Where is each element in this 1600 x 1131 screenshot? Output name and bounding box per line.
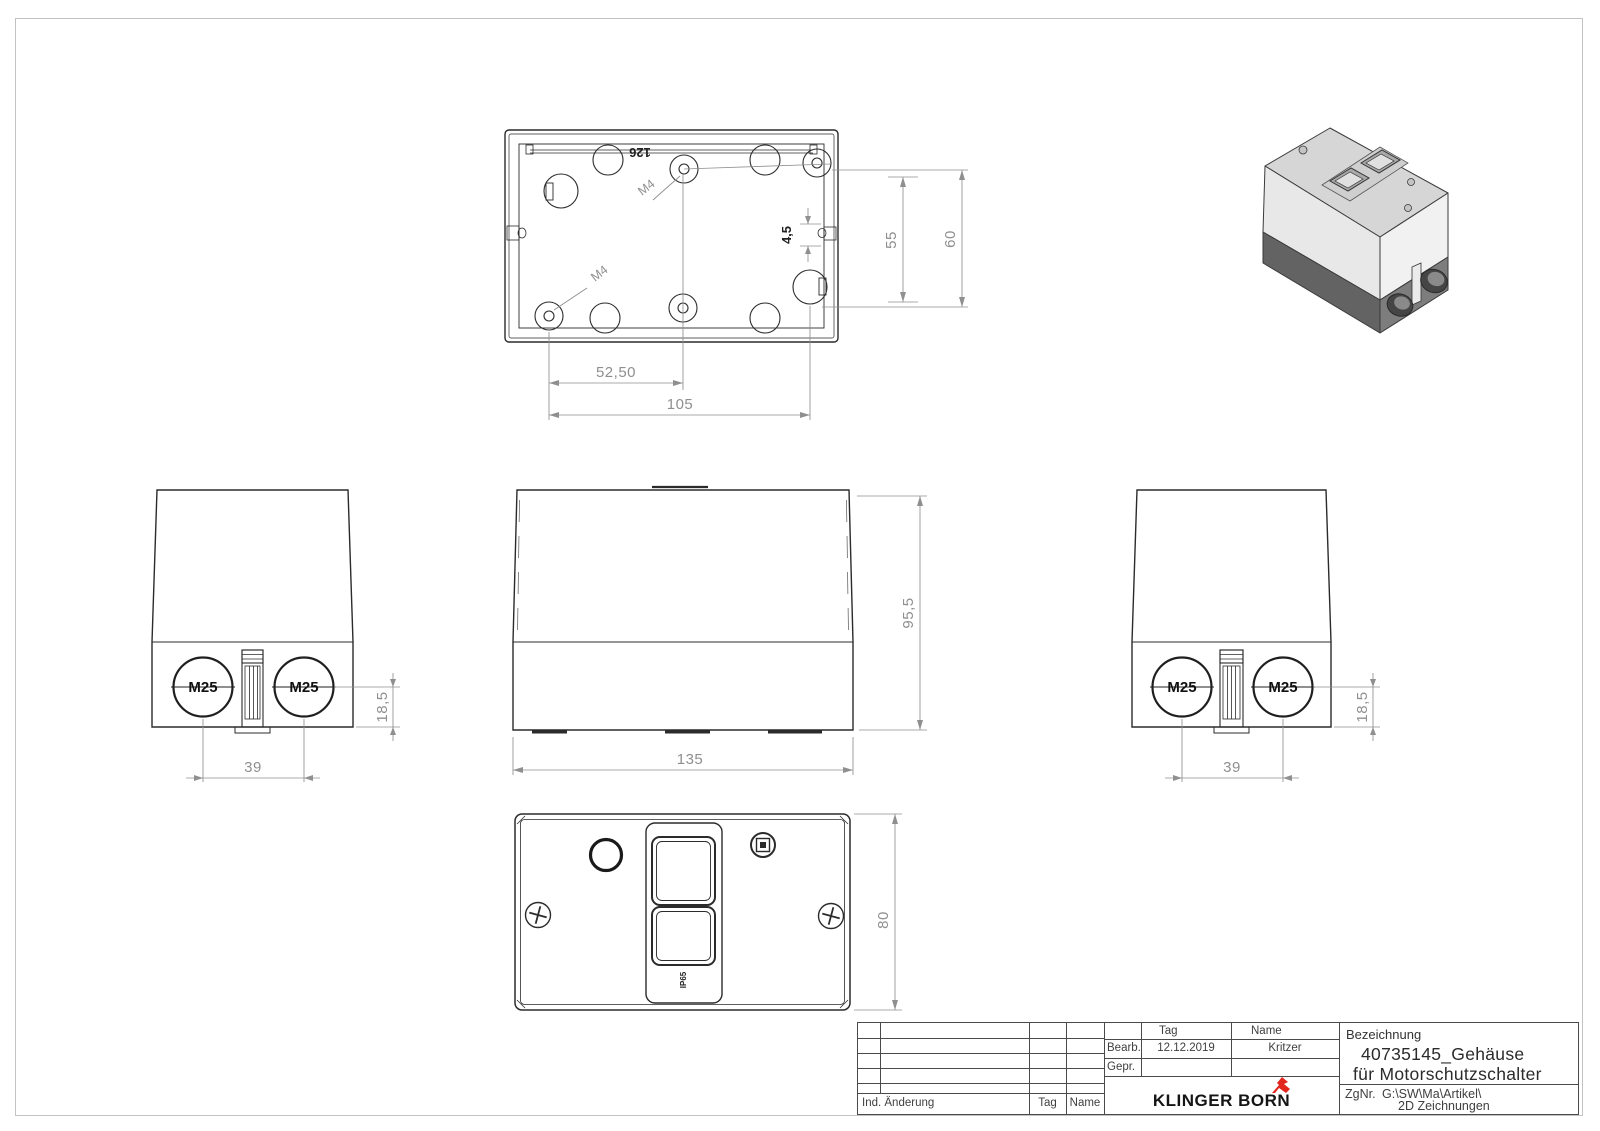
titleblock-line: [1104, 1058, 1339, 1059]
revision-label: Ind. Änderung: [862, 1097, 934, 1109]
gland-label-m25-left1: M25: [188, 679, 217, 696]
titleblock-line: [858, 1093, 1104, 1094]
titleblock-line: [858, 1053, 1104, 1054]
view-front: 135 95,5: [490, 470, 940, 785]
title-block: Ind. Änderung Tag Name Tag Name Bearb. 1…: [857, 1022, 1579, 1115]
gland-label-m25-right1: M25: [1167, 679, 1196, 696]
titleblock-line: [858, 1068, 1104, 1069]
dim-39-right: 39: [1223, 759, 1241, 776]
ip-rating-label: IP65: [679, 971, 688, 988]
part-title-line1: 40735145_Gehäuse: [1361, 1044, 1524, 1065]
cover-screw-right: [819, 904, 844, 929]
front-outline: [513, 487, 853, 730]
zgnr-label: ZgNr.: [1345, 1087, 1376, 1101]
zgnr-path-line2: 2D Zeichnungen: [1398, 1099, 1490, 1113]
titleblock-line: [858, 1083, 1104, 1084]
titleblock-line: [1104, 1039, 1339, 1040]
bearb-date: 12.12.2019: [1141, 1042, 1231, 1054]
mold-marking-126: 126: [629, 145, 651, 160]
view-isometric-3d: [1230, 105, 1480, 345]
drawing-sheet: 126 M4 M4 52,50 105 55 60 4,5: [0, 0, 1600, 1131]
revision-col-tag: Tag: [1029, 1097, 1066, 1109]
revision-col-name: Name: [1066, 1097, 1104, 1109]
iso-body: [1263, 128, 1448, 333]
col-header-tag: Tag: [1159, 1025, 1178, 1037]
row-label-bearb: Bearb.: [1107, 1042, 1141, 1054]
gland-label-m25-right2: M25: [1268, 679, 1297, 696]
view-side-right: M25 M25 18,5 39: [1090, 470, 1390, 810]
bearb-name: Kritzer: [1231, 1042, 1339, 1054]
dim-60: 60: [942, 230, 959, 248]
thread-label-m4-bottom: M4: [588, 263, 610, 285]
company-logo-text: KLINGER BORN: [1104, 1091, 1339, 1111]
titleblock-line: [858, 1038, 1104, 1039]
front-dimension-arrows: [513, 496, 923, 773]
view-top-interior: 126 M4 M4 52,50 105 55 60 4,5: [490, 120, 970, 430]
thread-label-m4-top: M4: [635, 177, 657, 199]
cover-screw-left: [526, 903, 551, 928]
dim-4-5: 4,5: [779, 226, 794, 244]
part-title-line2: für Motorschutzschalter: [1353, 1064, 1542, 1085]
front-dimension-lines: [513, 496, 927, 775]
side-left-conduit: [235, 650, 270, 733]
view-side-left: M25 M25 18,5 39: [130, 470, 420, 810]
side-right-conduit: [1214, 650, 1249, 733]
row-label-gepr: Gepr.: [1107, 1061, 1135, 1073]
dim-95-5: 95,5: [900, 597, 917, 628]
dim-55: 55: [883, 231, 900, 249]
col-header-name: Name: [1251, 1025, 1282, 1037]
dim-18-5-right: 18,5: [1354, 691, 1371, 722]
bezeichnung-label: Bezeichnung: [1346, 1027, 1421, 1042]
titleblock-line: [1104, 1076, 1339, 1077]
dim-52-50: 52,50: [596, 364, 636, 381]
dim-39-left: 39: [244, 759, 262, 776]
dim-135: 135: [677, 751, 704, 768]
gland-label-m25-left2: M25: [289, 679, 318, 696]
side-left-outline: [152, 490, 353, 727]
dim-18-5-left: 18,5: [374, 691, 391, 722]
dim-80: 80: [875, 911, 892, 929]
dim-105: 105: [667, 396, 694, 413]
titleblock-line: [1339, 1023, 1340, 1114]
reset-button-opening: [591, 840, 622, 871]
view-cover: IP65 80: [490, 800, 920, 1025]
test-button: [751, 833, 775, 857]
